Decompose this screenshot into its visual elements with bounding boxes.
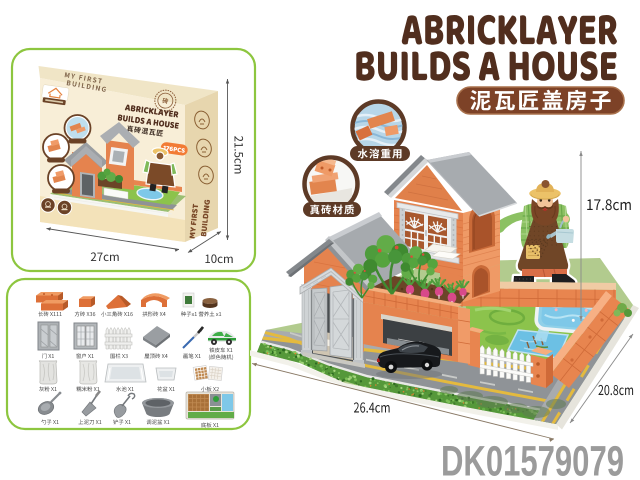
svg-text:DK01579079: DK01579079: [441, 438, 624, 480]
